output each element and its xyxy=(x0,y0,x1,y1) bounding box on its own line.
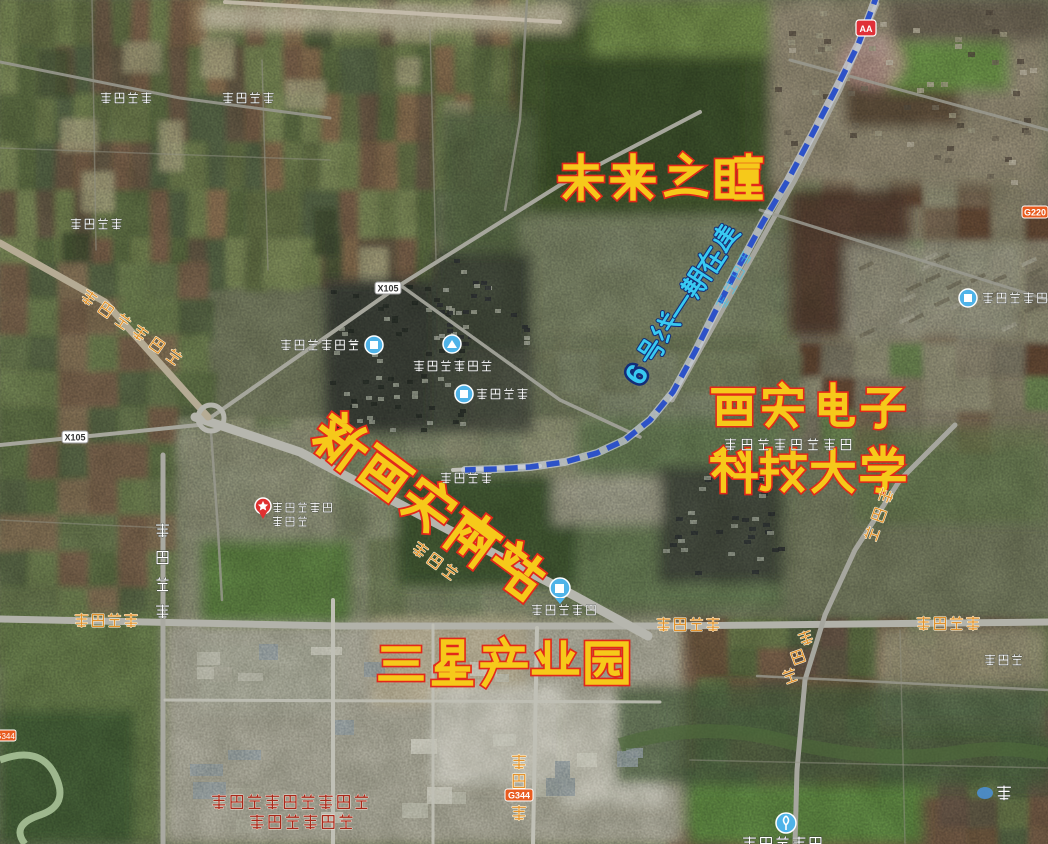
svg-text:X105: X105 xyxy=(377,284,398,294)
svg-text:AA: AA xyxy=(860,24,873,34)
svg-text:G220: G220 xyxy=(1024,208,1046,218)
svg-text:G344: G344 xyxy=(0,732,15,741)
svg-text:G344: G344 xyxy=(508,791,530,801)
svg-text:X105: X105 xyxy=(64,433,85,443)
